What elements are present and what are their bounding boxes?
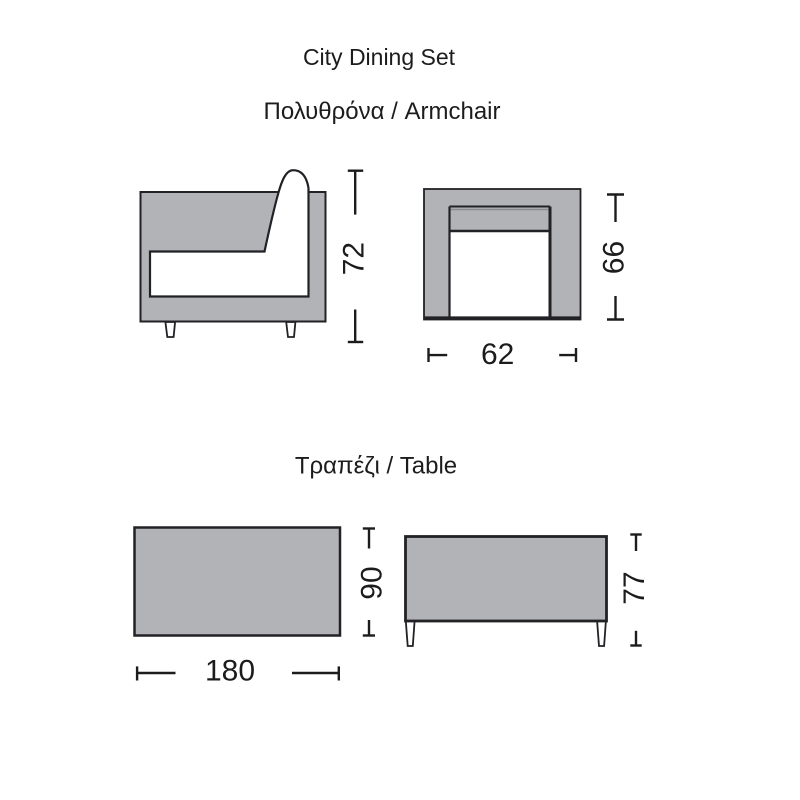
svg-text:Πολυθρόνα / Armchair: Πολυθρόνα / Armchair bbox=[263, 98, 500, 125]
svg-text:180: 180 bbox=[205, 655, 255, 688]
svg-text:Τραπέζι / Table: Τραπέζι / Table bbox=[295, 453, 457, 480]
svg-text:66: 66 bbox=[598, 241, 631, 274]
svg-text:72: 72 bbox=[338, 242, 371, 275]
svg-text:77: 77 bbox=[618, 571, 651, 604]
svg-text:City Dining Set: City Dining Set bbox=[303, 44, 456, 70]
svg-text:62: 62 bbox=[481, 338, 514, 371]
svg-text:90: 90 bbox=[356, 566, 389, 599]
